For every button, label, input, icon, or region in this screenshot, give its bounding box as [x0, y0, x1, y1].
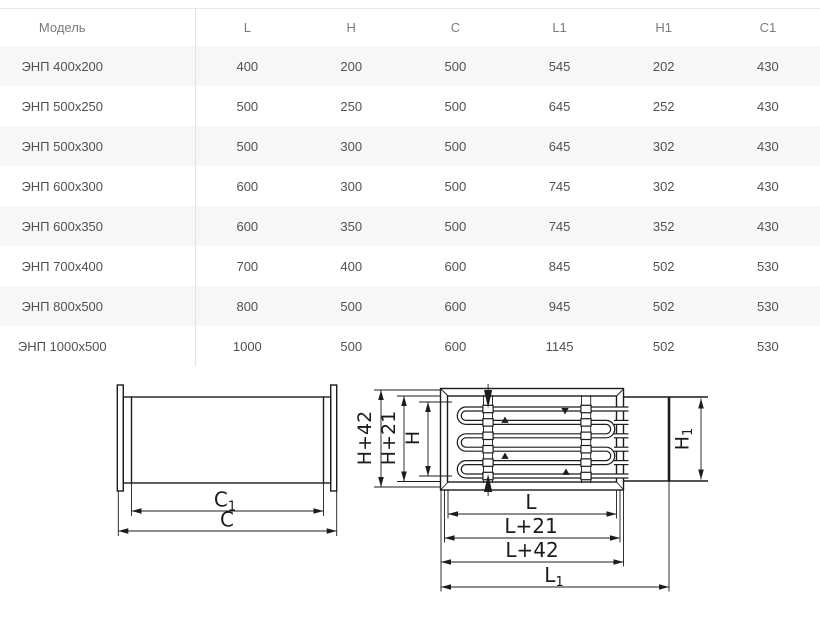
value-cell: 430	[716, 126, 820, 166]
value-cell: 502	[612, 246, 716, 286]
value-cell: 430	[716, 206, 820, 246]
value-cell: 745	[507, 206, 611, 246]
dim-l42: L+42	[441, 538, 624, 562]
value-cell: 500	[403, 166, 507, 206]
value-cell: 745	[507, 166, 611, 206]
value-cell: 400	[195, 46, 299, 86]
value-cell: 500	[403, 126, 507, 166]
table-row: ЭНП 1000x50010005006001145502530	[0, 326, 820, 366]
table-header: Модель L H C L1 H1 C1	[0, 9, 820, 47]
value-cell: 430	[716, 86, 820, 126]
value-cell: 600	[403, 246, 507, 286]
value-cell: 800	[195, 286, 299, 326]
duct-side-view-drawing: C1 C	[117, 385, 336, 536]
outlet-duct	[624, 397, 709, 481]
dim-label-l42: L+42	[505, 538, 558, 562]
value-cell: 600	[403, 326, 507, 366]
value-cell: 845	[507, 246, 611, 286]
model-cell: ЭНП 1000x500	[0, 326, 195, 366]
value-cell: 500	[299, 286, 403, 326]
value-cell: 600	[195, 166, 299, 206]
value-cell: 252	[612, 86, 716, 126]
dim-label-l: L	[525, 490, 537, 514]
value-cell: 352	[612, 206, 716, 246]
table-row: ЭНП 500x250500250500645252430	[0, 86, 820, 126]
dim-label-c: C	[220, 508, 234, 532]
model-cell: ЭНП 400x200	[0, 46, 195, 86]
value-cell: 300	[299, 126, 403, 166]
value-cell: 500	[299, 326, 403, 366]
value-cell: 500	[403, 86, 507, 126]
value-cell: 302	[612, 126, 716, 166]
dimensions-table: Модель L H C L1 H1 C1 ЭНП 400x2004002005…	[0, 8, 820, 366]
value-cell: 502	[612, 286, 716, 326]
model-cell: ЭНП 600x350	[0, 206, 195, 246]
value-cell: 530	[716, 246, 820, 286]
dim-label-h1: H1	[672, 428, 697, 451]
value-cell: 500	[403, 46, 507, 86]
value-cell: 302	[612, 166, 716, 206]
dim-label-l21: L+21	[504, 514, 557, 538]
value-cell: 700	[195, 246, 299, 286]
dim-l21: L+21	[445, 514, 621, 538]
dim-l1: L1	[441, 563, 669, 590]
drawings-panel: C1 C	[0, 375, 820, 622]
dim-label-h21: H+21	[378, 411, 400, 465]
left-flange-plate	[117, 385, 123, 491]
spec-table-body: ЭНП 400x200400200500545202430ЭНП 500x250…	[0, 46, 820, 366]
value-cell: 645	[507, 86, 611, 126]
value-cell: 250	[299, 86, 403, 126]
value-cell: 600	[195, 206, 299, 246]
table-row: ЭНП 400x200400200500545202430	[0, 46, 820, 86]
value-cell: 350	[299, 206, 403, 246]
col-header-l: L	[195, 9, 299, 47]
value-cell: 400	[299, 246, 403, 286]
col-header-model: Модель	[0, 9, 195, 47]
value-cell: 500	[403, 206, 507, 246]
value-cell: 545	[507, 46, 611, 86]
value-cell: 502	[612, 326, 716, 366]
heater-top-view-drawing: H+42 H+21 H H1	[354, 384, 708, 592]
spec-section: Модель L H C L1 H1 C1 ЭНП 400x2004002005…	[0, 8, 820, 630]
value-cell: 945	[507, 286, 611, 326]
model-cell: ЭНП 600x300	[0, 166, 195, 206]
dim-label-h42: H+42	[354, 411, 376, 465]
table-row: ЭНП 600x350600350500745352430	[0, 206, 820, 246]
value-cell: 430	[716, 46, 820, 86]
value-cell: 500	[195, 86, 299, 126]
col-header-c: C	[403, 9, 507, 47]
value-cell: 530	[716, 286, 820, 326]
value-cell: 645	[507, 126, 611, 166]
dim-h1: H1	[672, 399, 702, 480]
duct-body	[123, 397, 330, 483]
value-cell: 1145	[507, 326, 611, 366]
col-header-h1: H1	[612, 9, 716, 47]
technical-drawings: C1 C	[0, 375, 820, 622]
col-header-h: H	[299, 9, 403, 47]
dim-l: L	[448, 490, 617, 514]
table-row: ЭНП 700x400700400600845502530	[0, 246, 820, 286]
value-cell: 202	[612, 46, 716, 86]
right-flange-plate	[331, 385, 337, 491]
value-cell: 300	[299, 166, 403, 206]
table-row: ЭНП 800x500800500600945502530	[0, 286, 820, 326]
model-cell: ЭНП 800x500	[0, 286, 195, 326]
table-row: ЭНП 500x300500300500645302430	[0, 126, 820, 166]
model-cell: ЭНП 500x250	[0, 86, 195, 126]
value-cell: 200	[299, 46, 403, 86]
dim-label-l1: L1	[544, 563, 563, 590]
model-cell: ЭНП 700x400	[0, 246, 195, 286]
value-cell: 430	[716, 166, 820, 206]
value-cell: 500	[195, 126, 299, 166]
value-cell: 600	[403, 286, 507, 326]
model-cell: ЭНП 500x300	[0, 126, 195, 166]
value-cell: 530	[716, 326, 820, 366]
table-row: ЭНП 600x300600300500745302430	[0, 166, 820, 206]
value-cell: 1000	[195, 326, 299, 366]
col-header-c1: C1	[716, 9, 820, 47]
col-header-l1: L1	[507, 9, 611, 47]
header-row: Модель L H C L1 H1 C1	[0, 9, 820, 47]
dim-label-h: H	[402, 431, 424, 445]
